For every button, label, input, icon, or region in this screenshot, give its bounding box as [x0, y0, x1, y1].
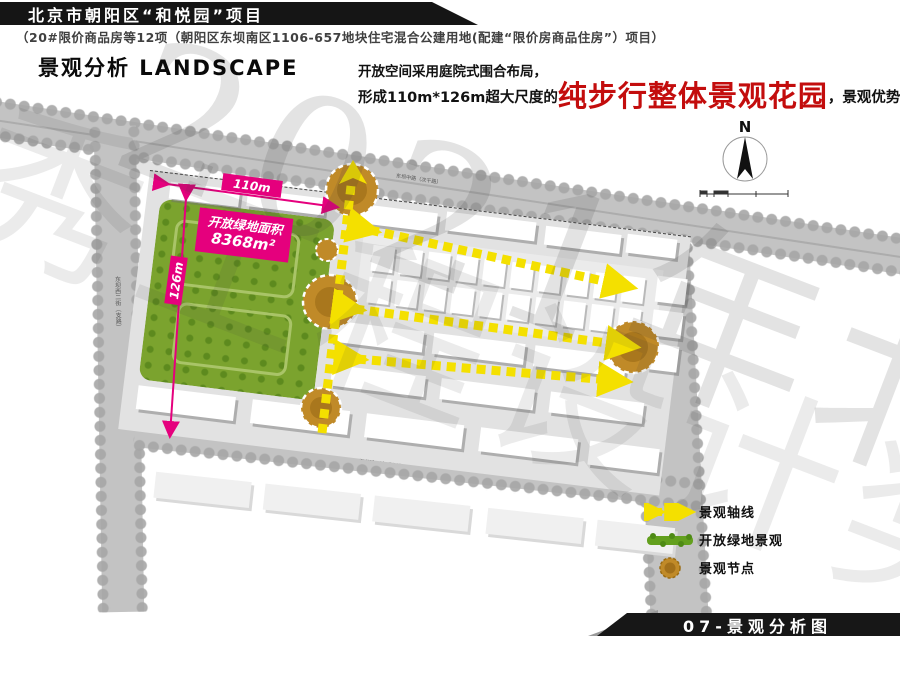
legend: 景观轴线 开放绿地景观 景观节点 — [641, 501, 783, 585]
section-heading: 景观分析 LANDSCAPE — [38, 52, 298, 82]
building — [366, 277, 391, 305]
description-suffix: ，景观优势突出。 — [828, 86, 900, 111]
building — [364, 413, 464, 449]
building — [548, 392, 644, 424]
building — [655, 276, 688, 305]
description-line2: 形成110m*126m超大尺度的 纯步行整体景观花园 ，景观优势突出。 — [358, 82, 898, 111]
building — [350, 203, 438, 232]
building — [587, 441, 659, 473]
legend-label-node: 景观节点 — [699, 558, 755, 577]
compass-north-label: N — [702, 118, 788, 136]
description-highlight: 纯步行整体景观花园 — [558, 82, 828, 111]
building — [593, 272, 618, 300]
building — [478, 290, 503, 318]
building — [398, 248, 423, 276]
building — [621, 276, 646, 304]
building — [422, 283, 447, 311]
building — [432, 333, 526, 365]
legend-label-axis: 景观轴线 — [699, 502, 755, 521]
building — [544, 226, 622, 254]
legend-row-green: 开放绿地景观 — [641, 529, 783, 550]
building — [454, 255, 479, 283]
building — [250, 399, 350, 435]
building — [450, 287, 475, 315]
building — [330, 365, 426, 397]
page-number-label: 07-景观分析图 — [665, 613, 832, 637]
legend-row-node: 景观节点 — [641, 557, 783, 578]
road-west-label: 东坝西二街（支路） — [112, 276, 122, 330]
building — [439, 378, 535, 410]
building — [533, 345, 627, 377]
header-bar: 北京市朝阳区“和悦园”项目 — [0, 2, 478, 25]
building — [485, 508, 583, 544]
page-title: 北京市朝阳区“和悦园”项目 — [0, 2, 264, 26]
building — [561, 300, 586, 328]
building — [617, 307, 642, 335]
building — [533, 297, 558, 325]
building — [482, 258, 507, 286]
building — [330, 320, 424, 352]
project-subtitle: （20#限价商品房等12项（朝阳区东坝南区1106-657地块住宅混合公建用地(… — [16, 27, 896, 46]
building — [263, 484, 361, 520]
building — [651, 309, 684, 338]
building — [589, 304, 614, 332]
footer-bar: 07-景观分析图 — [597, 613, 900, 636]
building — [370, 245, 395, 273]
building — [426, 252, 451, 280]
building — [537, 265, 562, 293]
landscape-node-icon — [641, 556, 699, 580]
description-block: 开放空间采用庭院式围合布局， 形成110m*126m超大尺度的 纯步行整体景观花… — [358, 60, 898, 111]
open-green-icon — [641, 531, 699, 549]
building — [625, 234, 677, 259]
legend-row-axis: 景观轴线 — [641, 501, 783, 522]
building — [394, 280, 419, 308]
building — [505, 294, 530, 322]
description-prefix: 形成110m*126m超大尺度的 — [358, 86, 558, 111]
building — [372, 496, 470, 532]
compass: N — [702, 118, 788, 202]
building — [509, 262, 534, 290]
building — [646, 343, 679, 372]
building — [565, 269, 590, 297]
building — [136, 385, 236, 421]
building — [153, 472, 251, 508]
building — [445, 212, 537, 242]
landscape-axis-icon — [641, 503, 699, 521]
building — [478, 427, 578, 463]
description-line1: 开放空间采用庭院式围合布局， — [358, 60, 898, 80]
legend-label-green: 开放绿地景观 — [699, 530, 783, 549]
